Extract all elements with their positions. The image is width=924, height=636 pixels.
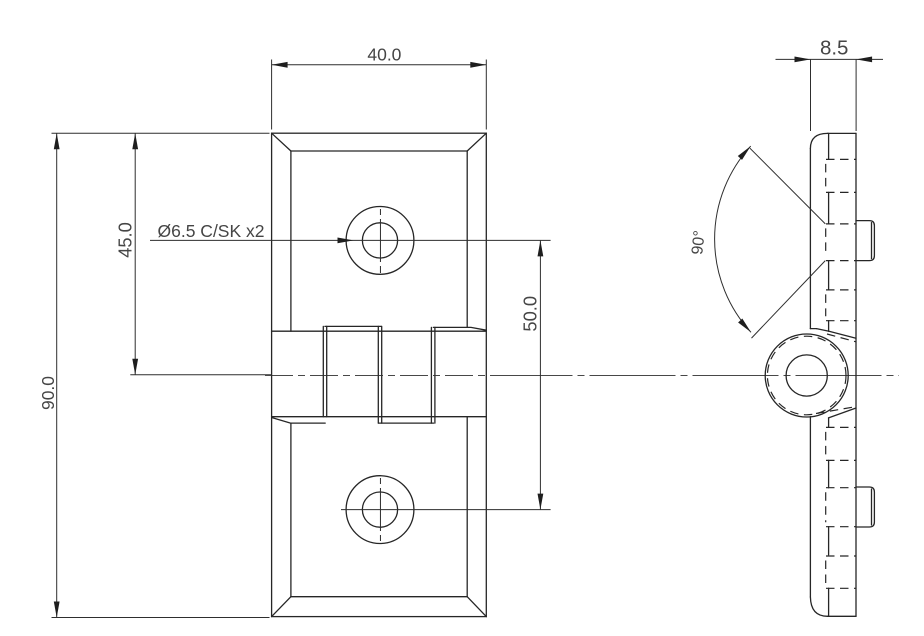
svg-text:8.5: 8.5 [820, 37, 849, 60]
svg-text:45.0: 45.0 [115, 222, 136, 258]
svg-text:90°: 90° [689, 230, 708, 256]
svg-text:Ø6.5 C/SK x2: Ø6.5 C/SK x2 [158, 221, 265, 241]
svg-text:90.0: 90.0 [38, 376, 58, 410]
svg-text:50.0: 50.0 [520, 296, 541, 332]
svg-text:40.0: 40.0 [367, 45, 401, 65]
